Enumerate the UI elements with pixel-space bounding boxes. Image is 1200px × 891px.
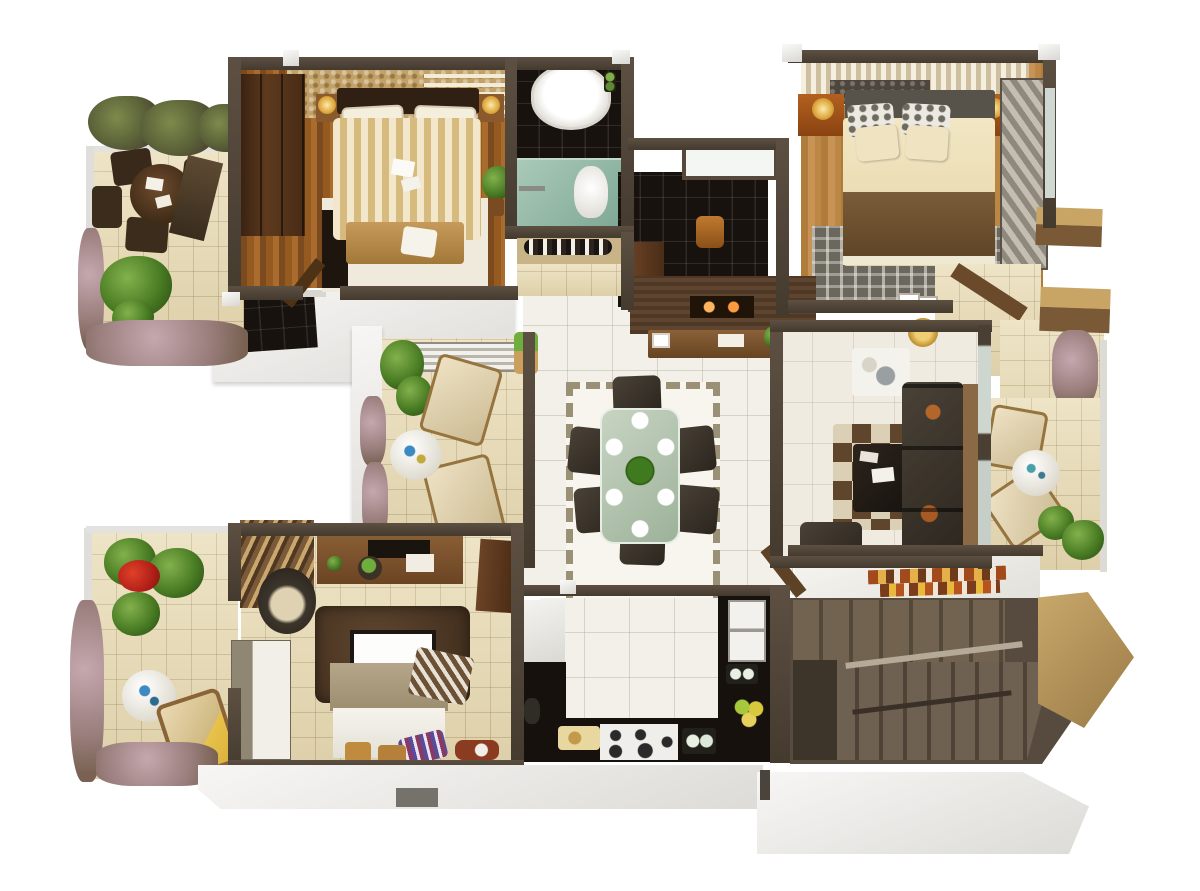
outer-wall-bottom-right	[757, 772, 1089, 854]
niche-floor-strip	[517, 264, 621, 296]
region-staircase	[788, 545, 1093, 775]
region-living-room	[770, 318, 992, 570]
floor-plan-canvas	[0, 0, 1200, 891]
region-bedroom-2	[228, 523, 524, 773]
outer-wall-step-notch	[760, 770, 770, 800]
outer-wall-notch	[396, 788, 438, 807]
region-kitchen	[512, 585, 790, 765]
region-balcony-top-left	[84, 94, 249, 354]
region-garden-balcony	[66, 518, 238, 786]
mosaic-band	[524, 239, 612, 255]
region-bedroom-1	[228, 57, 518, 302]
